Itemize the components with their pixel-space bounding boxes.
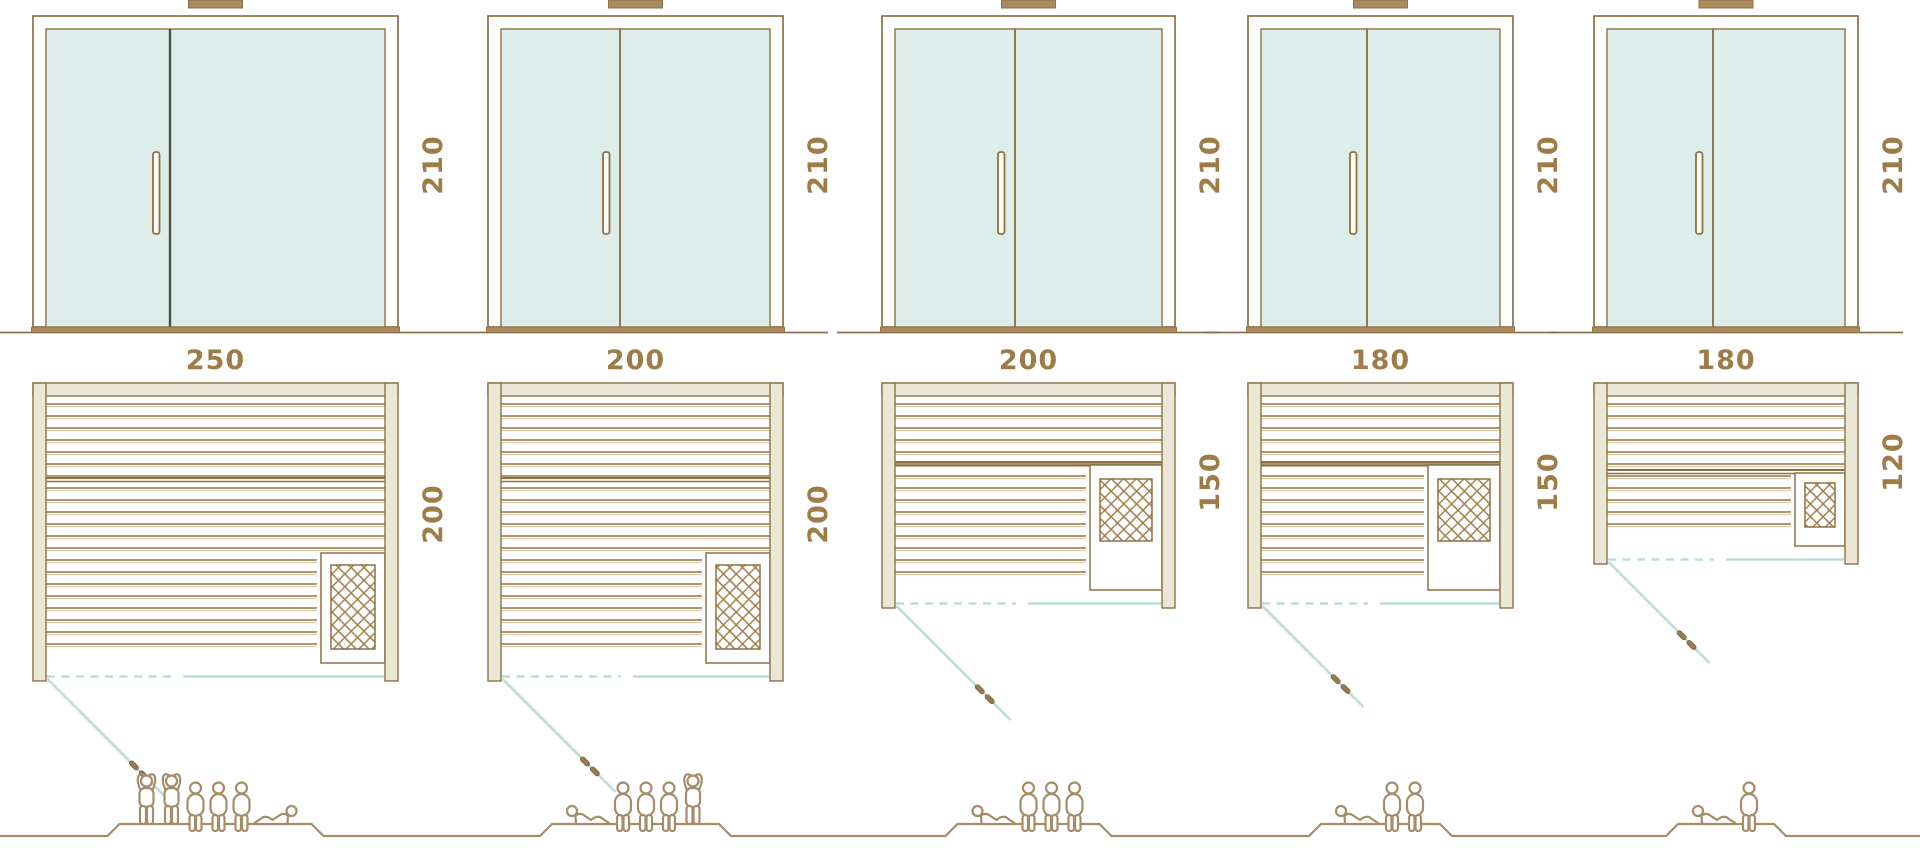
glass-panel-left — [895, 29, 1015, 327]
height-dimension-label: 210 — [1879, 135, 1909, 195]
wall-left — [1594, 383, 1607, 564]
sitting-person-icon — [1067, 783, 1083, 832]
door-sill — [1247, 327, 1515, 333]
sitting-person-icon — [211, 783, 227, 832]
sitting-person-icon — [638, 783, 654, 832]
wall-left — [33, 383, 46, 681]
heater-icon — [716, 565, 760, 649]
roof-vent-icon — [189, 0, 243, 8]
capacity-group-sauna-180x120 — [1693, 783, 1757, 832]
standing-person-icon — [138, 774, 155, 824]
glass-panel-right — [1367, 29, 1500, 327]
roof-vent-icon — [1354, 0, 1408, 8]
lying-person-icon — [255, 806, 297, 824]
height-dimension-label: 210 — [419, 135, 449, 195]
heater-icon — [1100, 479, 1152, 541]
roof-vent-icon — [609, 0, 663, 8]
floor-plan — [882, 383, 1177, 746]
lying-person-icon — [973, 806, 1015, 824]
people-baseline — [0, 824, 1920, 836]
standing-person-icon — [684, 774, 701, 824]
heater-icon — [1438, 479, 1490, 541]
door-handle-icon — [1350, 152, 1357, 234]
door-sill — [487, 327, 785, 333]
depth-dimension-label: 150 — [1534, 452, 1564, 512]
width-dimension-label: 180 — [1248, 346, 1513, 376]
width-dimension-label: 200 — [882, 346, 1175, 376]
sauna-250x200: 210250200 — [33, 0, 398, 856]
sitting-person-icon — [1407, 783, 1423, 832]
wall-right — [1162, 383, 1175, 608]
sitting-person-icon — [1021, 783, 1037, 832]
door-handle-icon — [998, 152, 1005, 234]
glass-panel-right — [170, 29, 385, 327]
roof-vent-icon — [1699, 0, 1753, 8]
wall-right — [770, 383, 783, 681]
glass-panel-right — [1713, 29, 1845, 327]
wall-top — [882, 383, 1175, 396]
door-elevation — [1248, 0, 1515, 340]
door-sill — [1593, 327, 1860, 333]
door-elevation — [488, 0, 785, 340]
door-handle-icon — [153, 152, 160, 234]
height-dimension-label: 210 — [804, 135, 834, 195]
sitting-person-icon — [1044, 783, 1060, 832]
height-dimension-label: 210 — [1196, 135, 1226, 195]
height-dimension-label: 210 — [1534, 135, 1564, 195]
capacity-group-sauna-250x200 — [138, 774, 297, 831]
door-elevation — [882, 0, 1177, 340]
glass-panel-left — [46, 29, 170, 327]
sitting-person-icon — [1741, 783, 1757, 832]
wall-top — [488, 383, 783, 396]
floor-plan — [1594, 383, 1860, 689]
door-handle-icon — [603, 152, 610, 234]
depth-dimension-label: 120 — [1879, 432, 1909, 492]
sauna-200x200: 210200200 — [488, 0, 783, 856]
door-sill — [32, 327, 400, 333]
wall-right — [385, 383, 398, 681]
wall-top — [1594, 383, 1858, 396]
wall-top — [33, 383, 398, 396]
depth-dimension-label: 200 — [804, 484, 834, 544]
floor-plan — [1248, 383, 1515, 733]
floor-plan — [33, 383, 400, 823]
sitting-person-icon — [661, 783, 677, 832]
glass-panel-right — [1015, 29, 1162, 327]
sauna-dimension-diagram: 210250200 210200200 210200150 — [0, 0, 1920, 856]
sauna-180x150: 210180150 — [1248, 0, 1513, 856]
width-dimension-label: 250 — [33, 346, 398, 376]
lying-person-icon — [567, 806, 609, 824]
sitting-person-icon — [234, 783, 250, 832]
sitting-person-icon — [188, 783, 204, 832]
door-sill — [881, 327, 1177, 333]
wall-left — [882, 383, 895, 608]
sitting-person-icon — [615, 783, 631, 832]
floor-plan — [488, 383, 785, 818]
capacity-group-sauna-200x200 — [567, 774, 702, 831]
roof-vent-icon — [1002, 0, 1056, 8]
sauna-180x120: 210180120 — [1594, 0, 1858, 856]
wall-left — [488, 383, 501, 681]
wall-left — [1248, 383, 1261, 608]
sitting-person-icon — [1384, 783, 1400, 832]
lying-person-icon — [1336, 806, 1378, 824]
standing-person-icon — [163, 774, 180, 824]
width-dimension-label: 200 — [488, 346, 783, 376]
sauna-200x150: 210200150 — [882, 0, 1175, 856]
wall-top — [1248, 383, 1513, 396]
heater-icon — [331, 565, 375, 649]
heater-icon — [1805, 483, 1835, 527]
glass-panel-right — [620, 29, 770, 327]
width-dimension-label: 180 — [1594, 346, 1858, 376]
lying-person-icon — [1693, 806, 1735, 824]
wall-right — [1845, 383, 1858, 564]
wall-right — [1500, 383, 1513, 608]
door-elevation — [33, 0, 400, 340]
depth-dimension-label: 150 — [1196, 452, 1226, 512]
capacity-figures-row — [0, 770, 1920, 856]
door-elevation — [1594, 0, 1860, 340]
depth-dimension-label: 200 — [419, 484, 449, 544]
door-handle-icon — [1696, 152, 1703, 234]
